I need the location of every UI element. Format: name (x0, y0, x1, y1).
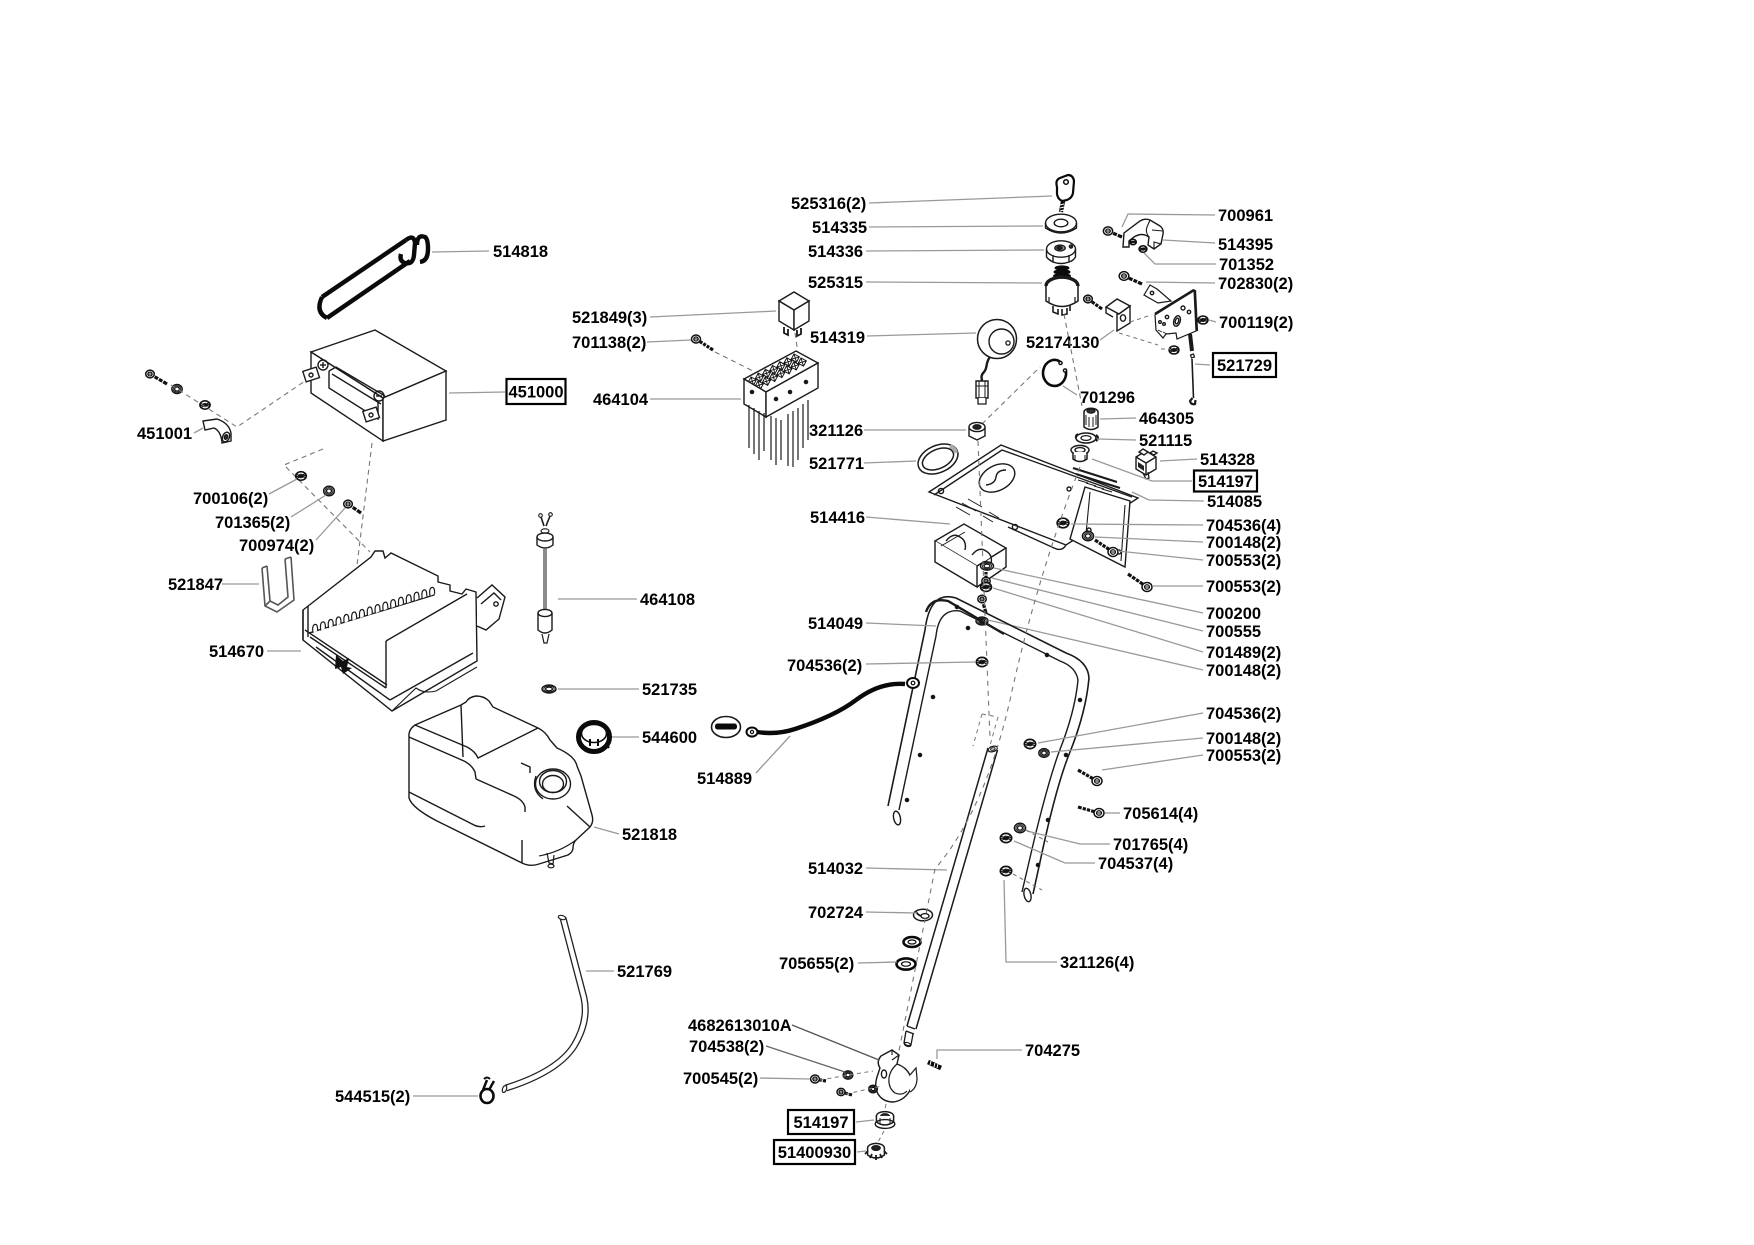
svg-text:704536(4): 704536(4) (1206, 517, 1281, 535)
svg-text:701296: 701296 (1080, 389, 1135, 407)
svg-text:704536(2): 704536(2) (1206, 705, 1281, 723)
svg-text:705614(4): 705614(4) (1123, 805, 1198, 823)
svg-text:464305: 464305 (1139, 410, 1194, 428)
svg-text:700555: 700555 (1206, 623, 1261, 641)
svg-text:514416: 514416 (810, 509, 865, 527)
svg-text:700553(2): 700553(2) (1206, 552, 1281, 570)
svg-text:514085: 514085 (1207, 493, 1262, 511)
svg-text:544515(2): 544515(2) (335, 1088, 410, 1106)
svg-text:521769: 521769 (617, 963, 672, 981)
svg-text:521115: 521115 (1139, 432, 1192, 450)
svg-text:514049: 514049 (808, 615, 863, 633)
svg-text:704275: 704275 (1025, 1042, 1080, 1060)
svg-text:700974(2): 700974(2) (239, 537, 314, 555)
svg-text:51400930: 51400930 (778, 1144, 851, 1162)
svg-text:514336: 514336 (808, 243, 863, 261)
svg-text:514889: 514889 (697, 770, 752, 788)
svg-text:521849(3): 521849(3) (572, 309, 647, 327)
svg-text:464104: 464104 (593, 391, 649, 409)
svg-text:701365(2): 701365(2) (215, 514, 290, 532)
svg-text:525315: 525315 (808, 274, 863, 292)
svg-text:52174130: 52174130 (1026, 334, 1099, 352)
svg-text:521818: 521818 (622, 826, 677, 844)
svg-text:704537(4): 704537(4) (1098, 855, 1173, 873)
svg-text:514335: 514335 (812, 219, 867, 237)
svg-text:514032: 514032 (808, 860, 863, 878)
svg-text:521729: 521729 (1217, 357, 1272, 375)
svg-text:702830(2): 702830(2) (1218, 275, 1293, 293)
svg-text:700961: 700961 (1218, 207, 1273, 225)
svg-text:704538(2): 704538(2) (689, 1038, 764, 1056)
svg-text:700200: 700200 (1206, 605, 1261, 623)
svg-text:521735: 521735 (642, 681, 697, 699)
svg-text:321126: 321126 (809, 422, 863, 440)
svg-text:321126(4): 321126(4) (1060, 954, 1134, 972)
svg-text:514395: 514395 (1218, 236, 1273, 254)
svg-text:700148(2): 700148(2) (1206, 662, 1281, 680)
svg-text:702724: 702724 (808, 904, 864, 922)
svg-text:451001: 451001 (137, 425, 192, 443)
svg-text:700119(2): 700119(2) (1219, 314, 1293, 332)
svg-text:514670: 514670 (209, 643, 264, 661)
svg-text:521771: 521771 (809, 455, 864, 473)
svg-text:451000: 451000 (508, 383, 563, 401)
svg-text:704536(2): 704536(2) (787, 657, 862, 675)
svg-text:701765(4): 701765(4) (1113, 836, 1188, 854)
svg-text:700148(2): 700148(2) (1206, 730, 1281, 748)
svg-text:521847: 521847 (168, 576, 223, 594)
svg-text:525316(2): 525316(2) (791, 195, 866, 213)
svg-text:705655(2): 705655(2) (779, 955, 854, 973)
svg-text:701352: 701352 (1219, 256, 1274, 274)
svg-text:700148(2): 700148(2) (1206, 534, 1281, 552)
svg-text:700545(2): 700545(2) (683, 1070, 758, 1088)
svg-text:700553(2): 700553(2) (1206, 578, 1281, 596)
svg-text:701138(2): 701138(2) (572, 334, 646, 352)
svg-text:514197: 514197 (1198, 473, 1253, 491)
svg-text:514818: 514818 (493, 243, 548, 261)
svg-text:464108: 464108 (640, 591, 695, 609)
svg-text:700106(2): 700106(2) (193, 490, 268, 508)
svg-text:514328: 514328 (1200, 451, 1255, 469)
svg-text:701489(2): 701489(2) (1206, 644, 1281, 662)
svg-text:4682613010A: 4682613010A (688, 1017, 792, 1035)
svg-text:514319: 514319 (810, 329, 865, 347)
svg-text:544600: 544600 (642, 729, 697, 747)
svg-text:514197: 514197 (793, 1114, 848, 1132)
svg-text:700553(2): 700553(2) (1206, 747, 1281, 765)
